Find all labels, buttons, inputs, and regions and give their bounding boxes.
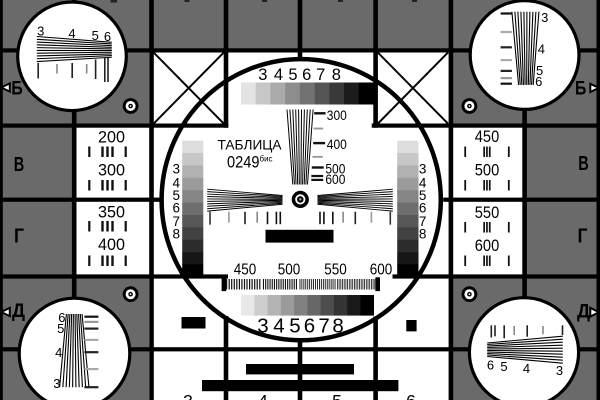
- svg-text:200: 200: [98, 128, 125, 147]
- svg-text:400: 400: [98, 235, 125, 254]
- svg-text:В: В: [14, 154, 25, 176]
- svg-text:8: 8: [332, 66, 341, 84]
- svg-text:300: 300: [327, 108, 347, 123]
- svg-text:600: 600: [325, 172, 345, 187]
- svg-text:5: 5: [332, 391, 342, 400]
- svg-text:6: 6: [406, 391, 416, 400]
- svg-text:3: 3: [173, 162, 181, 177]
- svg-text:550: 550: [324, 261, 347, 278]
- svg-text:В: В: [578, 153, 589, 175]
- svg-text:4: 4: [68, 26, 75, 41]
- svg-text:5: 5: [288, 66, 297, 84]
- svg-text:Б: Б: [11, 77, 22, 99]
- svg-text:Г: Г: [14, 225, 24, 247]
- svg-text:450: 450: [475, 127, 500, 146]
- svg-text:8: 8: [173, 227, 181, 242]
- svg-text:8: 8: [419, 227, 427, 242]
- svg-text:4: 4: [258, 391, 268, 400]
- svg-text:4: 4: [538, 41, 545, 56]
- svg-text:7: 7: [316, 66, 325, 84]
- svg-text:600: 600: [370, 261, 393, 278]
- svg-text:3: 3: [37, 24, 44, 39]
- svg-text:3: 3: [53, 376, 60, 391]
- svg-text:450: 450: [234, 261, 257, 278]
- svg-text:5: 5: [289, 315, 300, 338]
- svg-text:500: 500: [278, 261, 301, 278]
- svg-text:5: 5: [500, 359, 507, 374]
- svg-text:6: 6: [304, 315, 315, 338]
- svg-text:Г: Г: [578, 226, 588, 248]
- svg-text:3: 3: [419, 162, 427, 177]
- svg-text:Б: Б: [575, 78, 586, 100]
- svg-text:550: 550: [475, 203, 500, 222]
- svg-text:400: 400: [327, 137, 347, 152]
- svg-text:300: 300: [98, 161, 125, 180]
- svg-text:600: 600: [475, 236, 500, 255]
- svg-text:4: 4: [273, 315, 284, 338]
- svg-text:5: 5: [92, 28, 99, 43]
- svg-text:Д: Д: [577, 301, 590, 323]
- svg-text:6: 6: [104, 29, 111, 44]
- svg-text:6: 6: [535, 74, 542, 89]
- svg-text:500: 500: [475, 161, 500, 180]
- svg-text:ТАБЛИЦА: ТАБЛИЦА: [218, 137, 283, 153]
- svg-text:4: 4: [523, 361, 530, 376]
- svg-text:6: 6: [487, 358, 494, 373]
- svg-text:7: 7: [318, 315, 329, 338]
- svg-text:3: 3: [541, 10, 548, 25]
- svg-text:3: 3: [258, 66, 267, 84]
- svg-text:5: 5: [57, 321, 64, 336]
- svg-text:3: 3: [556, 363, 563, 378]
- svg-text:4: 4: [55, 345, 62, 360]
- svg-text:Д: Д: [12, 300, 25, 322]
- svg-text:3: 3: [183, 391, 193, 400]
- svg-text:4: 4: [274, 66, 283, 84]
- svg-text:6: 6: [302, 66, 311, 84]
- svg-text:350: 350: [98, 203, 125, 222]
